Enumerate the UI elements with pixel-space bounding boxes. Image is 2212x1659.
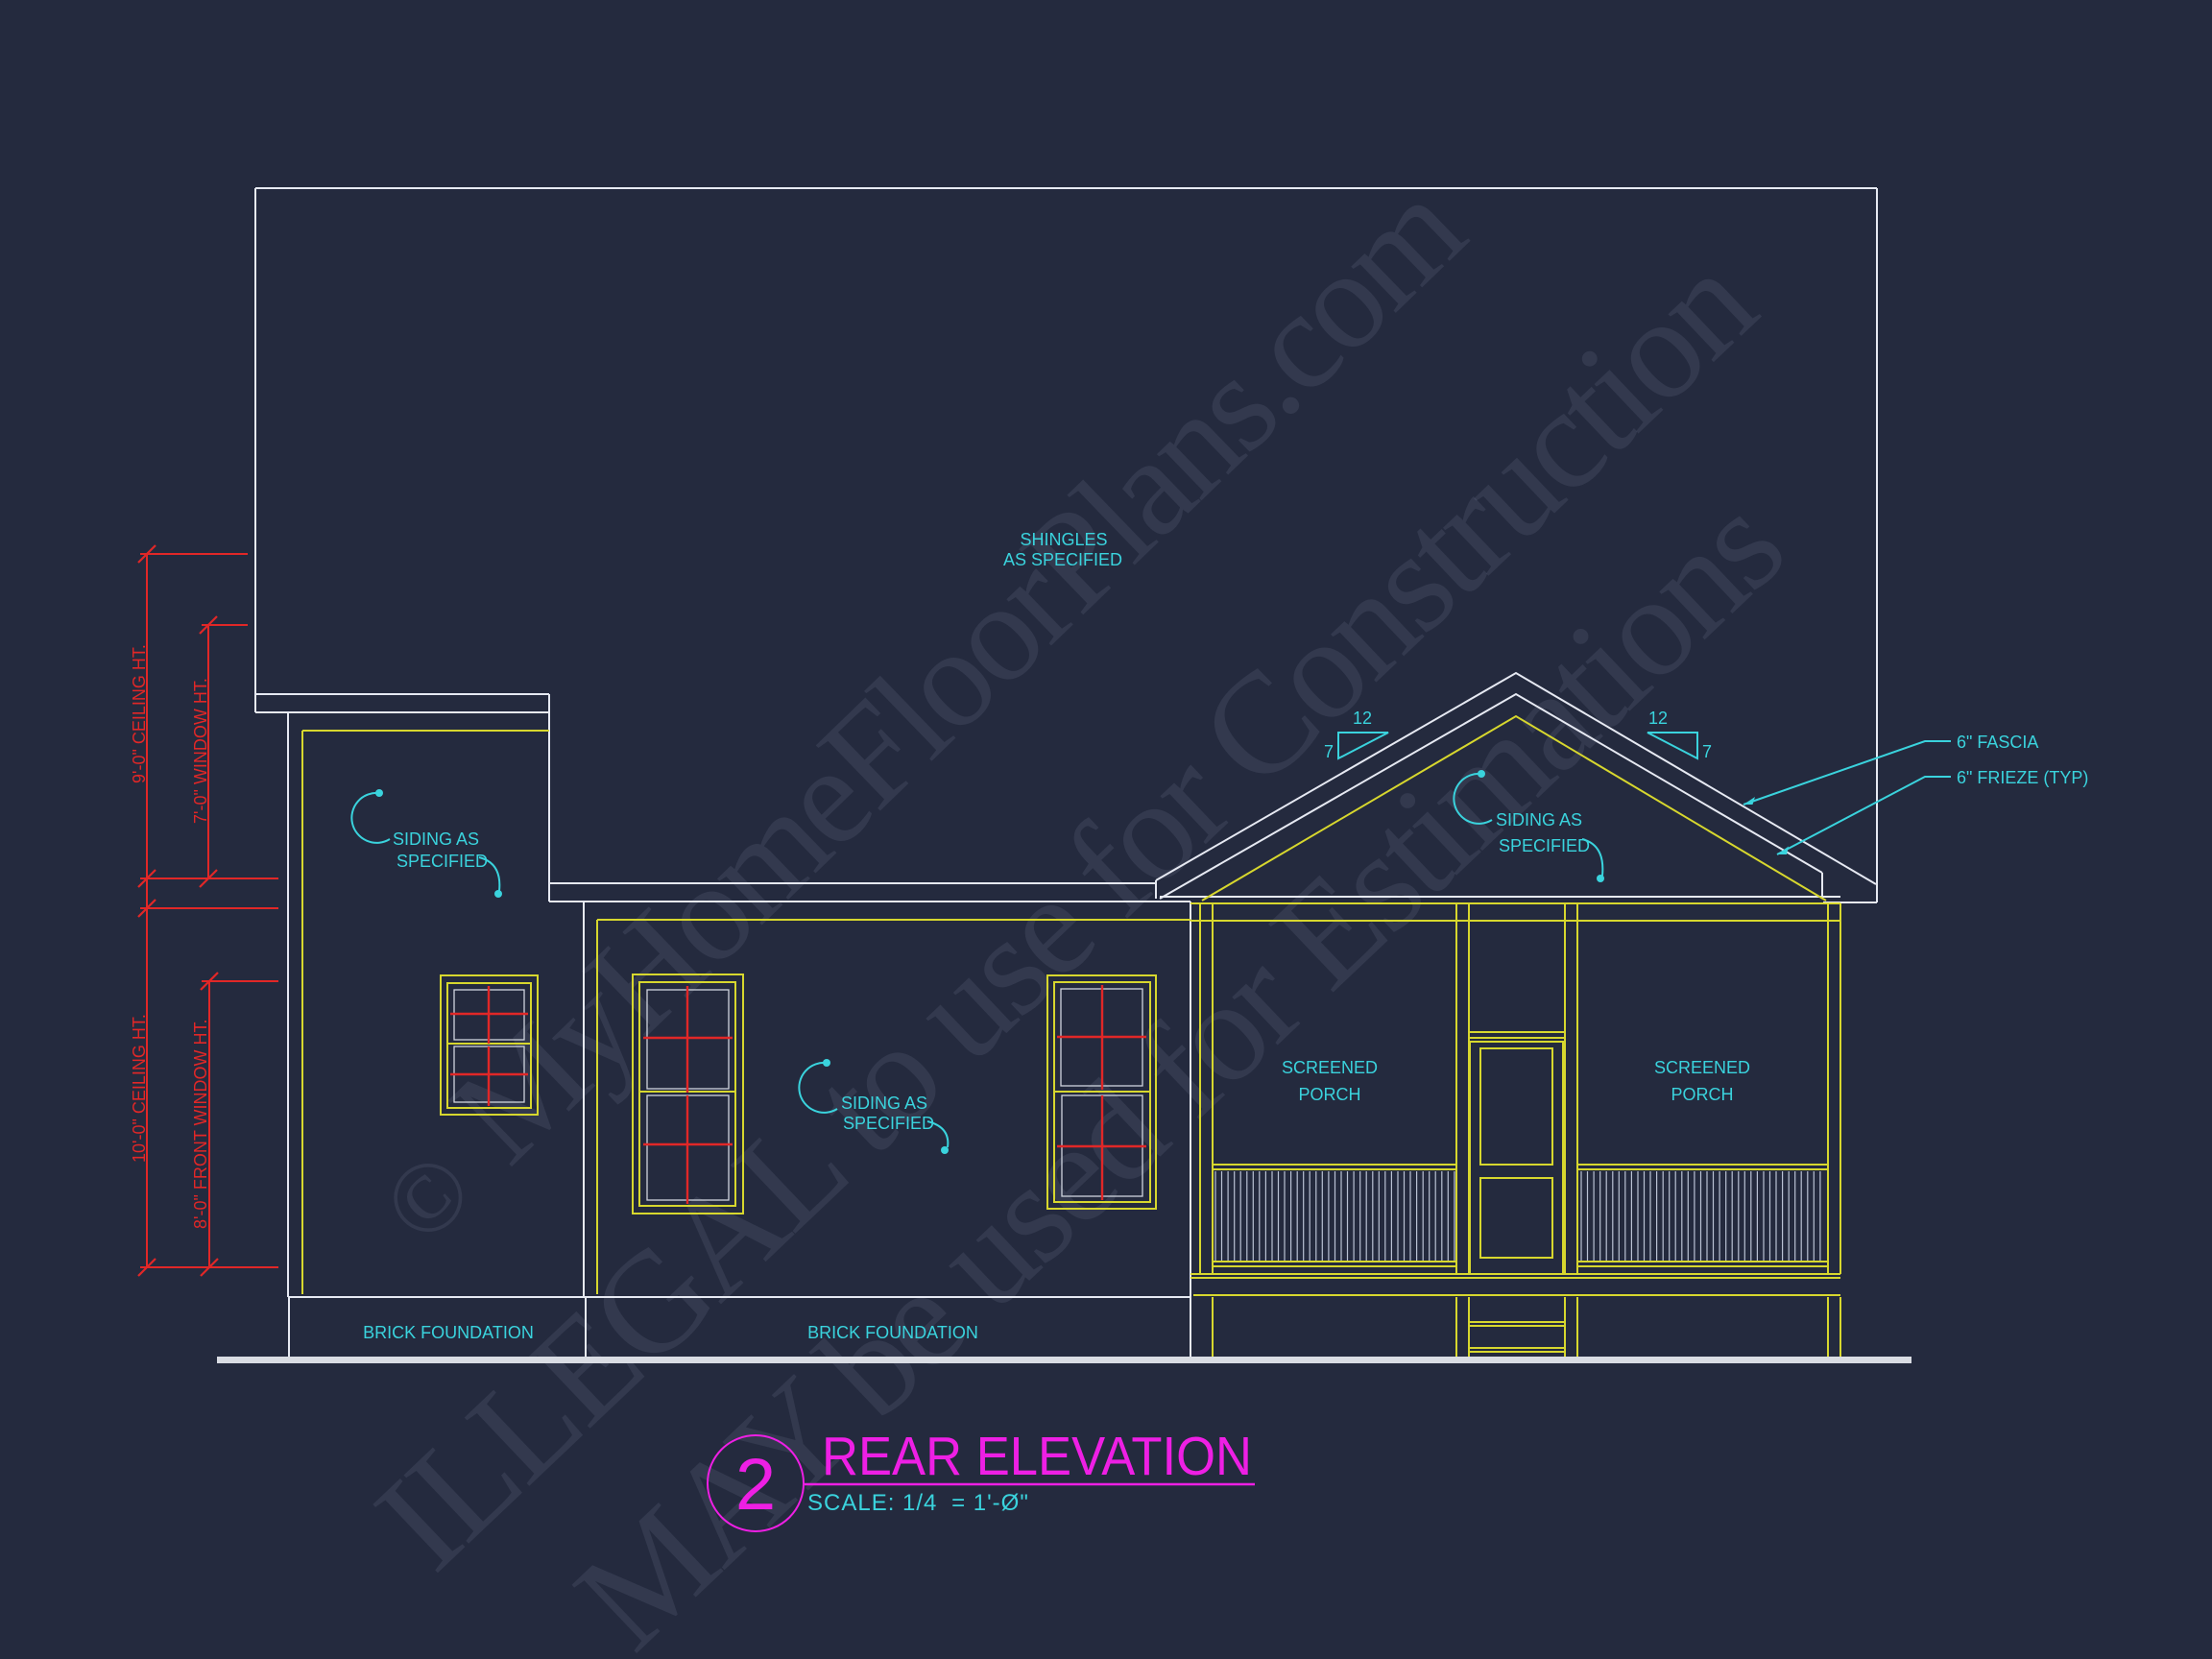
- svg-text:10'-0" CEILING HT.: 10'-0" CEILING HT.: [130, 1014, 149, 1163]
- svg-text:2: 2: [735, 1444, 776, 1526]
- svg-text:BRICK FOUNDATION: BRICK FOUNDATION: [807, 1323, 978, 1342]
- svg-text:SIDING AS: SIDING AS: [393, 829, 479, 849]
- svg-text:SIDING AS: SIDING AS: [1496, 810, 1582, 829]
- svg-text:SIDING AS: SIDING AS: [841, 1094, 927, 1113]
- svg-text:AS SPECIFIED: AS SPECIFIED: [1003, 550, 1122, 569]
- svg-text:12: 12: [1353, 709, 1372, 728]
- svg-text:7: 7: [1324, 742, 1334, 761]
- svg-text:PORCH: PORCH: [1671, 1085, 1733, 1104]
- svg-text:7'-0" WINDOW HT.: 7'-0" WINDOW HT.: [191, 678, 210, 824]
- svg-text:BRICK FOUNDATION: BRICK FOUNDATION: [363, 1323, 534, 1342]
- svg-text:6" FRIEZE (TYP): 6" FRIEZE (TYP): [1957, 768, 2088, 787]
- svg-text:SPECIFIED: SPECIFIED: [843, 1114, 934, 1133]
- svg-text:SCALE: 1/4 = 1'-Ø": SCALE: 1/4 = 1'-Ø": [807, 1490, 1029, 1516]
- svg-text:9'-0" CEILING HT.: 9'-0" CEILING HT.: [130, 644, 149, 783]
- svg-text:SPECIFIED: SPECIFIED: [397, 852, 488, 871]
- svg-text:SCREENED: SCREENED: [1282, 1058, 1378, 1077]
- svg-text:SCREENED: SCREENED: [1654, 1058, 1750, 1077]
- svg-text:SPECIFIED: SPECIFIED: [1499, 836, 1590, 855]
- svg-text:8'-0" FRONT WINDOW HT.: 8'-0" FRONT WINDOW HT.: [191, 1020, 210, 1230]
- svg-text:REAR ELEVATION: REAR ELEVATION: [822, 1426, 1252, 1487]
- svg-text:SHINGLES: SHINGLES: [1020, 530, 1107, 549]
- svg-text:7: 7: [1702, 742, 1712, 761]
- svg-text:6" FASCIA: 6" FASCIA: [1957, 733, 2038, 752]
- svg-text:12: 12: [1648, 709, 1668, 728]
- svg-text:PORCH: PORCH: [1298, 1085, 1360, 1104]
